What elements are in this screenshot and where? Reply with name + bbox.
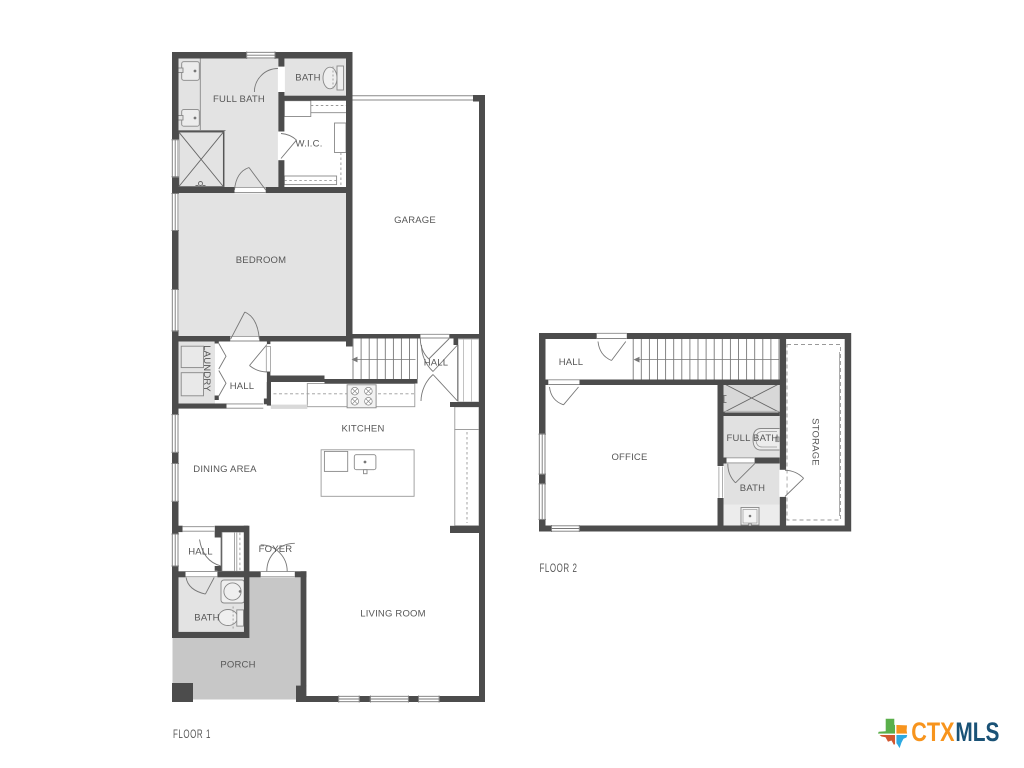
svg-text:FLOOR 2: FLOOR 2 <box>540 563 578 575</box>
svg-text:FOYER: FOYER <box>259 544 293 555</box>
svg-text:CTX: CTX <box>911 717 955 747</box>
svg-text:HALL: HALL <box>424 358 449 369</box>
svg-text:PORCH: PORCH <box>220 660 255 671</box>
svg-text:DINING AREA: DINING AREA <box>193 464 257 475</box>
svg-text:W.I.C.: W.I.C. <box>295 139 322 150</box>
svg-text:LIVING ROOM: LIVING ROOM <box>360 609 426 620</box>
svg-text:FLOOR 1: FLOOR 1 <box>173 729 211 741</box>
svg-text:STORAGE: STORAGE <box>810 418 821 466</box>
svg-text:BATH: BATH <box>740 483 765 494</box>
svg-text:LAUNDRY: LAUNDRY <box>201 345 212 392</box>
svg-text:KITCHEN: KITCHEN <box>341 424 384 435</box>
svg-text:MLS: MLS <box>955 717 999 747</box>
svg-text:HALL: HALL <box>559 357 584 368</box>
svg-text:HALL: HALL <box>230 381 255 392</box>
svg-text:BEDROOM: BEDROOM <box>236 255 287 266</box>
svg-text:FULL BATH: FULL BATH <box>213 94 265 105</box>
svg-text:HALL: HALL <box>188 547 213 558</box>
svg-text:GARAGE: GARAGE <box>394 215 436 226</box>
svg-text:FULL BATH: FULL BATH <box>727 433 779 444</box>
svg-text:BATH: BATH <box>194 613 219 624</box>
svg-text:OFFICE: OFFICE <box>611 452 647 463</box>
svg-text:BATH: BATH <box>295 73 320 84</box>
